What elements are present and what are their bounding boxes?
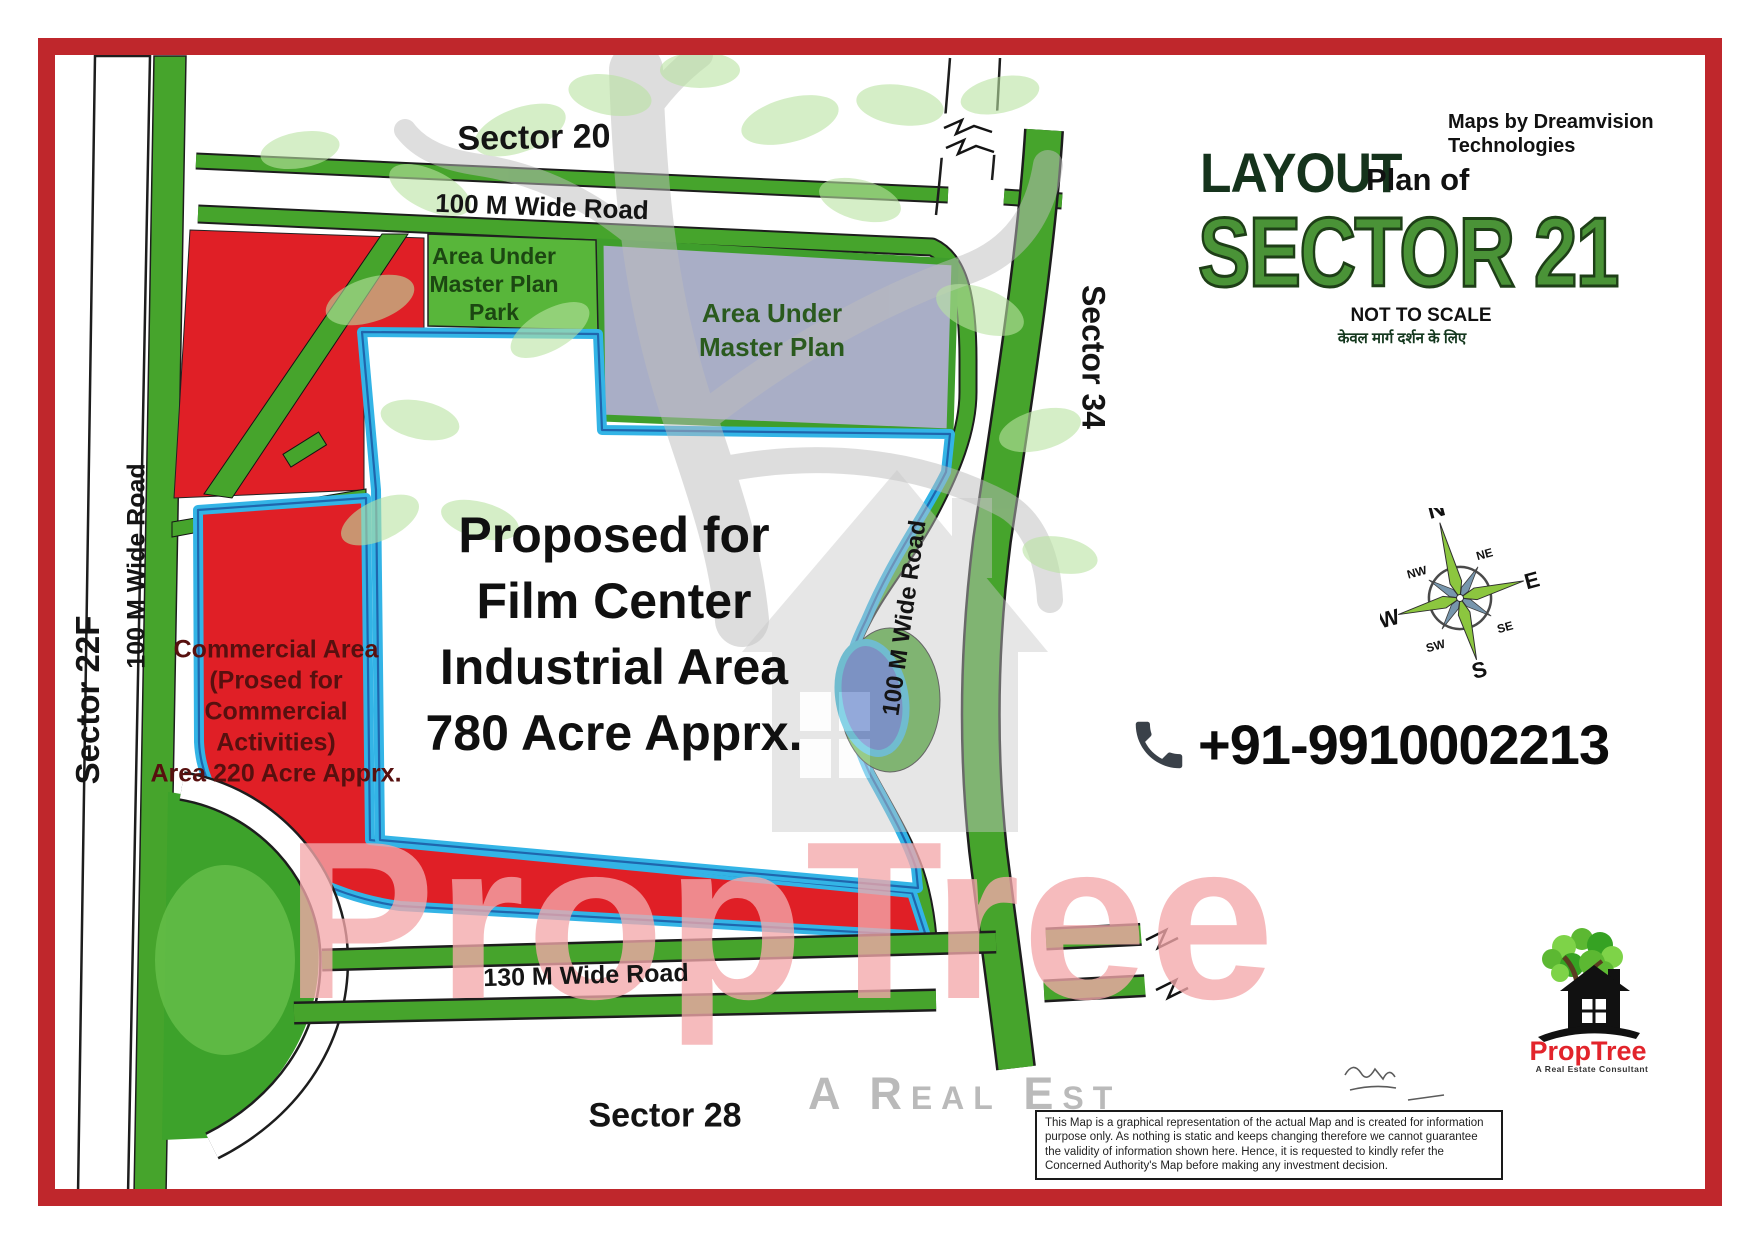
contact-row: +91-9910002213 [1128, 712, 1609, 777]
park-area-label: Area Under Master Plan Park [429, 242, 558, 326]
compass-rose-icon: N E S W NE NW SE SW [1380, 508, 1540, 680]
svg-text:NW: NW [1405, 563, 1429, 582]
sector-20-label: Sector 20 [457, 117, 611, 159]
svg-text:SE: SE [1496, 618, 1515, 636]
road-break-top [936, 110, 1010, 158]
master-plan-label: Area Under Master Plan [699, 296, 845, 364]
svg-text:S: S [1469, 656, 1490, 680]
left-road-label: 100 M Wide Road [123, 463, 152, 668]
phone-icon [1128, 714, 1190, 776]
signature-scribble [1345, 1067, 1444, 1100]
svg-text:W: W [1380, 604, 1402, 634]
proptree-logo [1512, 925, 1668, 1043]
svg-text:SW: SW [1424, 637, 1447, 656]
disclaimer-box: This Map is a graphical representation o… [1035, 1110, 1503, 1180]
bottom-road-label: 130 M Wide Road [483, 959, 689, 993]
svg-text:E: E [1522, 566, 1540, 594]
title-sector-21: SECTOR 21 [1198, 196, 1618, 309]
film-center-label: Proposed for Film Center Industrial Area… [425, 502, 802, 766]
commercial-area-label: Commercial Area (Prosed for Commercial A… [150, 635, 401, 790]
watermark-brand: PropTree [285, 808, 1276, 1033]
sector-28-label: Sector 28 [588, 1097, 741, 1136]
logo-brand-text: PropTree [1529, 1036, 1646, 1067]
hindi-note: केवल मार्ग दर्शन के लिए [1338, 328, 1466, 348]
sector-22f-label: Sector 22F [69, 616, 107, 785]
sector21-layout-poster: PropTree A Real Est Sector 20 Sector 22F… [0, 0, 1760, 1244]
credit-text: Maps by Dreamvision Technologies [1448, 110, 1698, 158]
sector-34-label: Sector 34 [1075, 285, 1112, 429]
title-plan-of: Plan of [1366, 162, 1469, 198]
phone-number: +91-9910002213 [1198, 712, 1609, 777]
svg-text:N: N [1424, 508, 1448, 525]
not-to-scale: NOT TO SCALE [1350, 305, 1491, 327]
svg-text:NE: NE [1475, 545, 1495, 563]
logo-tagline: A Real Estate Consultant [1536, 1064, 1649, 1074]
